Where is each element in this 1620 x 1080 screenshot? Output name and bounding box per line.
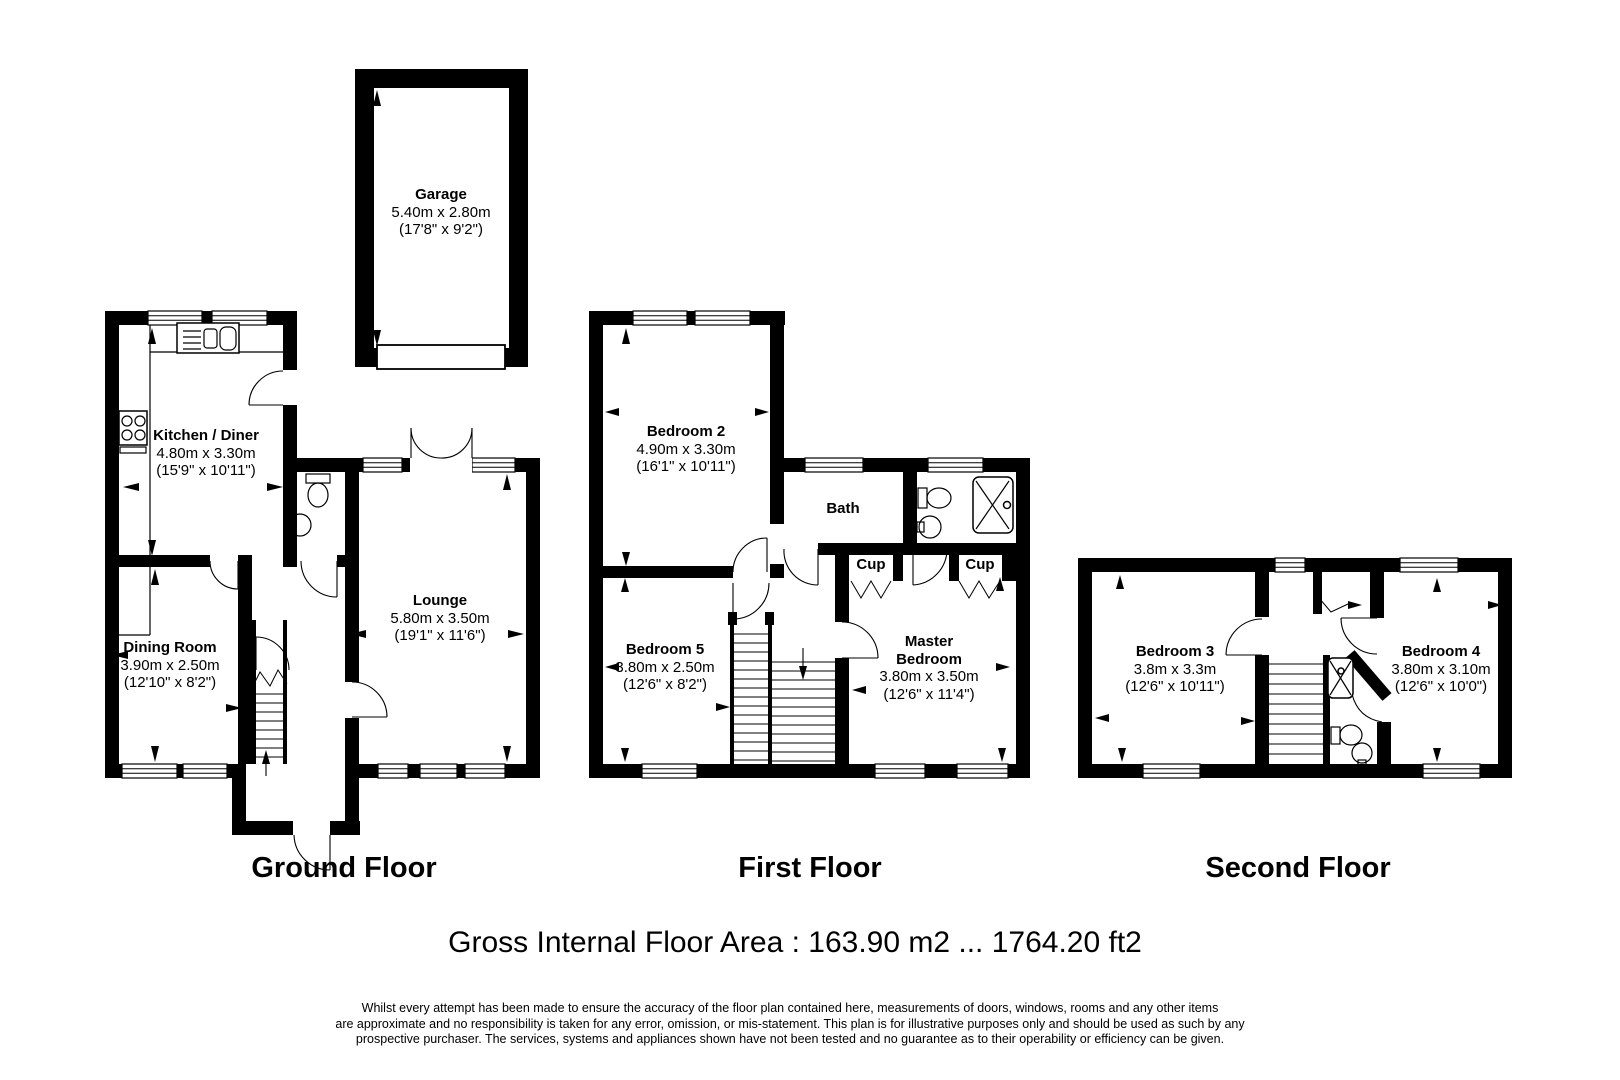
- room-dim-imperial: (19'1" x 11'6"): [390, 627, 489, 645]
- room-name: Master: [879, 633, 978, 651]
- window: [633, 311, 687, 325]
- bedroom5-door: [733, 583, 769, 619]
- window: [957, 764, 1008, 778]
- room-dim-imperial: (12'6" x 8'2"): [615, 676, 714, 694]
- room-name: Bedroom 2: [636, 423, 736, 441]
- room-dim-metric: 5.80m x 3.50m: [390, 610, 489, 628]
- ground-windows: [122, 311, 515, 778]
- room-dim-imperial: (16'1" x 10'11"): [636, 458, 736, 476]
- window: [378, 764, 408, 778]
- window: [875, 764, 925, 778]
- window: [695, 311, 750, 325]
- second-floor-title: Second Floor: [1205, 852, 1390, 885]
- room-dim-imperial: (12'6" x 10'0"): [1391, 678, 1490, 696]
- disclaimer-line: are approximate and no responsibility is…: [335, 1017, 1244, 1033]
- second-stairs: [1269, 664, 1323, 754]
- first-fixtures: [917, 477, 1013, 538]
- gross-internal-area-text: Gross Internal Floor Area : 163.90 m2 ..…: [448, 926, 1142, 960]
- room-name: Kitchen / Diner: [153, 427, 259, 445]
- window: [928, 458, 983, 472]
- floorplan-drawing: [0, 0, 1620, 1080]
- room-name: Bedroom 3: [1125, 643, 1225, 661]
- lounge-door: [352, 682, 387, 717]
- window: [183, 764, 227, 778]
- room-name: Cup: [965, 556, 994, 574]
- room-dim-imperial: (17'8" x 9'2"): [391, 221, 490, 239]
- bedroom2-label: Bedroom 2 4.90m x 3.30m (16'1" x 10'11"): [636, 423, 736, 476]
- lounge-label: Lounge 5.80m x 3.50m (19'1" x 11'6"): [390, 592, 489, 645]
- first-stairs: [728, 612, 835, 764]
- room-dim-metric: 3.8m x 3.3m: [1125, 661, 1225, 679]
- first-floor-plan: [589, 311, 1030, 778]
- bath-door: [784, 549, 818, 585]
- window: [363, 458, 402, 472]
- room-name: Lounge: [390, 592, 489, 610]
- basin-icon: [917, 516, 941, 538]
- landing-closet-door: [1319, 598, 1348, 612]
- bath-label: Bath: [826, 500, 859, 518]
- room-dim-metric: 3.90m x 2.50m: [120, 657, 219, 675]
- first-floor-title: First Floor: [738, 852, 881, 885]
- room-name: Cup: [856, 556, 885, 574]
- shower-icon: [973, 477, 1013, 533]
- room-dim-metric: 5.40m x 2.80m: [391, 204, 490, 222]
- bedroom4-label: Bedroom 4 3.80m x 3.10m (12'6" x 10'0"): [1391, 643, 1490, 696]
- room-dim-imperial: (12'6" x 11'4"): [879, 686, 978, 704]
- room-dim-metric: 3.80m x 3.10m: [1391, 661, 1490, 679]
- toilet-icon: [306, 474, 330, 507]
- dimension-arrow: [373, 90, 381, 106]
- window: [642, 764, 697, 778]
- window: [1143, 764, 1200, 778]
- kitchen-sink-icon: [177, 323, 239, 353]
- ground-floor-plan: [105, 311, 540, 870]
- window: [805, 458, 863, 472]
- disclaimer-line: prospective purchaser. The services, sys…: [335, 1032, 1244, 1048]
- dimension-arrow: [373, 330, 381, 346]
- room-dim-metric: 4.80m x 3.30m: [153, 445, 259, 463]
- room-dim-metric: 3.80m x 2.50m: [615, 659, 714, 677]
- cup1-label: Cup: [856, 556, 885, 574]
- basin-icon: [1352, 743, 1372, 765]
- wc-door: [301, 561, 337, 597]
- stairs-down-arrow: [799, 648, 807, 680]
- window: [122, 764, 177, 778]
- window: [465, 764, 505, 778]
- window: [420, 764, 457, 778]
- window: [1400, 558, 1458, 572]
- garage-door: [377, 345, 505, 369]
- shower-icon: [1328, 658, 1353, 698]
- room-name: Bedroom 4: [1391, 643, 1490, 661]
- window: [1275, 558, 1305, 572]
- room-name: Bedroom 5: [615, 641, 714, 659]
- master-bedroom-label: Master Bedroom 3.80m x 3.50m (12'6" x 11…: [879, 633, 978, 703]
- disclaimer-text: Whilst every attempt has been made to en…: [335, 1001, 1244, 1048]
- room-dim-metric: 3.80m x 3.50m: [879, 668, 978, 686]
- bedroom4-door: [1341, 618, 1377, 654]
- ground-stairs: [252, 620, 287, 776]
- room-dim-imperial: (15'9" x 10'11"): [153, 462, 259, 480]
- room-name: Bedroom: [879, 651, 978, 669]
- ground-floor-title: Ground Floor: [251, 852, 436, 885]
- dining-door: [210, 561, 238, 589]
- window: [472, 458, 515, 472]
- hob-icon: [119, 411, 147, 453]
- french-doors: [411, 428, 472, 458]
- bedroom3-label: Bedroom 3 3.8m x 3.3m (12'6" x 10'11"): [1125, 643, 1225, 696]
- bedroom3-door: [1226, 619, 1262, 655]
- toilet-icon: [1331, 725, 1362, 745]
- toilet-icon: [918, 488, 951, 508]
- room-name: Garage: [391, 186, 490, 204]
- kitchen-side-door: [249, 371, 283, 405]
- garage-label: Garage 5.40m x 2.80m (17'8" x 9'2"): [391, 186, 490, 239]
- room-name: Dining Room: [120, 639, 219, 657]
- disclaimer-line: Whilst every attempt has been made to en…: [335, 1001, 1244, 1017]
- room-dim-imperial: (12'10" x 8'2"): [120, 674, 219, 692]
- room-dim-metric: 4.90m x 3.30m: [636, 441, 736, 459]
- cup-bifold-doors: [851, 581, 1000, 598]
- bedroom5-label: Bedroom 5 3.80m x 2.50m (12'6" x 8'2"): [615, 641, 714, 694]
- kitchen-label: Kitchen / Diner 4.80m x 3.30m (15'9" x 1…: [153, 427, 259, 480]
- room-dim-imperial: (12'6" x 10'11"): [1125, 678, 1225, 696]
- dining-label: Dining Room 3.90m x 2.50m (12'10" x 8'2"…: [120, 639, 219, 692]
- cup2-label: Cup: [965, 556, 994, 574]
- shower-room-door: [1352, 694, 1382, 722]
- first-walls: [589, 311, 1030, 778]
- window: [1423, 764, 1480, 778]
- ground-dimension-arrows: [112, 328, 524, 762]
- floorplan-page: Garage 5.40m x 2.80m (17'8" x 9'2") Kitc…: [0, 0, 1620, 1080]
- bedroom2-door: [733, 538, 767, 572]
- master-door: [842, 622, 878, 658]
- room-name: Bath: [826, 500, 859, 518]
- stairs-up-arrow: [262, 750, 270, 776]
- ground-walls: [105, 311, 540, 835]
